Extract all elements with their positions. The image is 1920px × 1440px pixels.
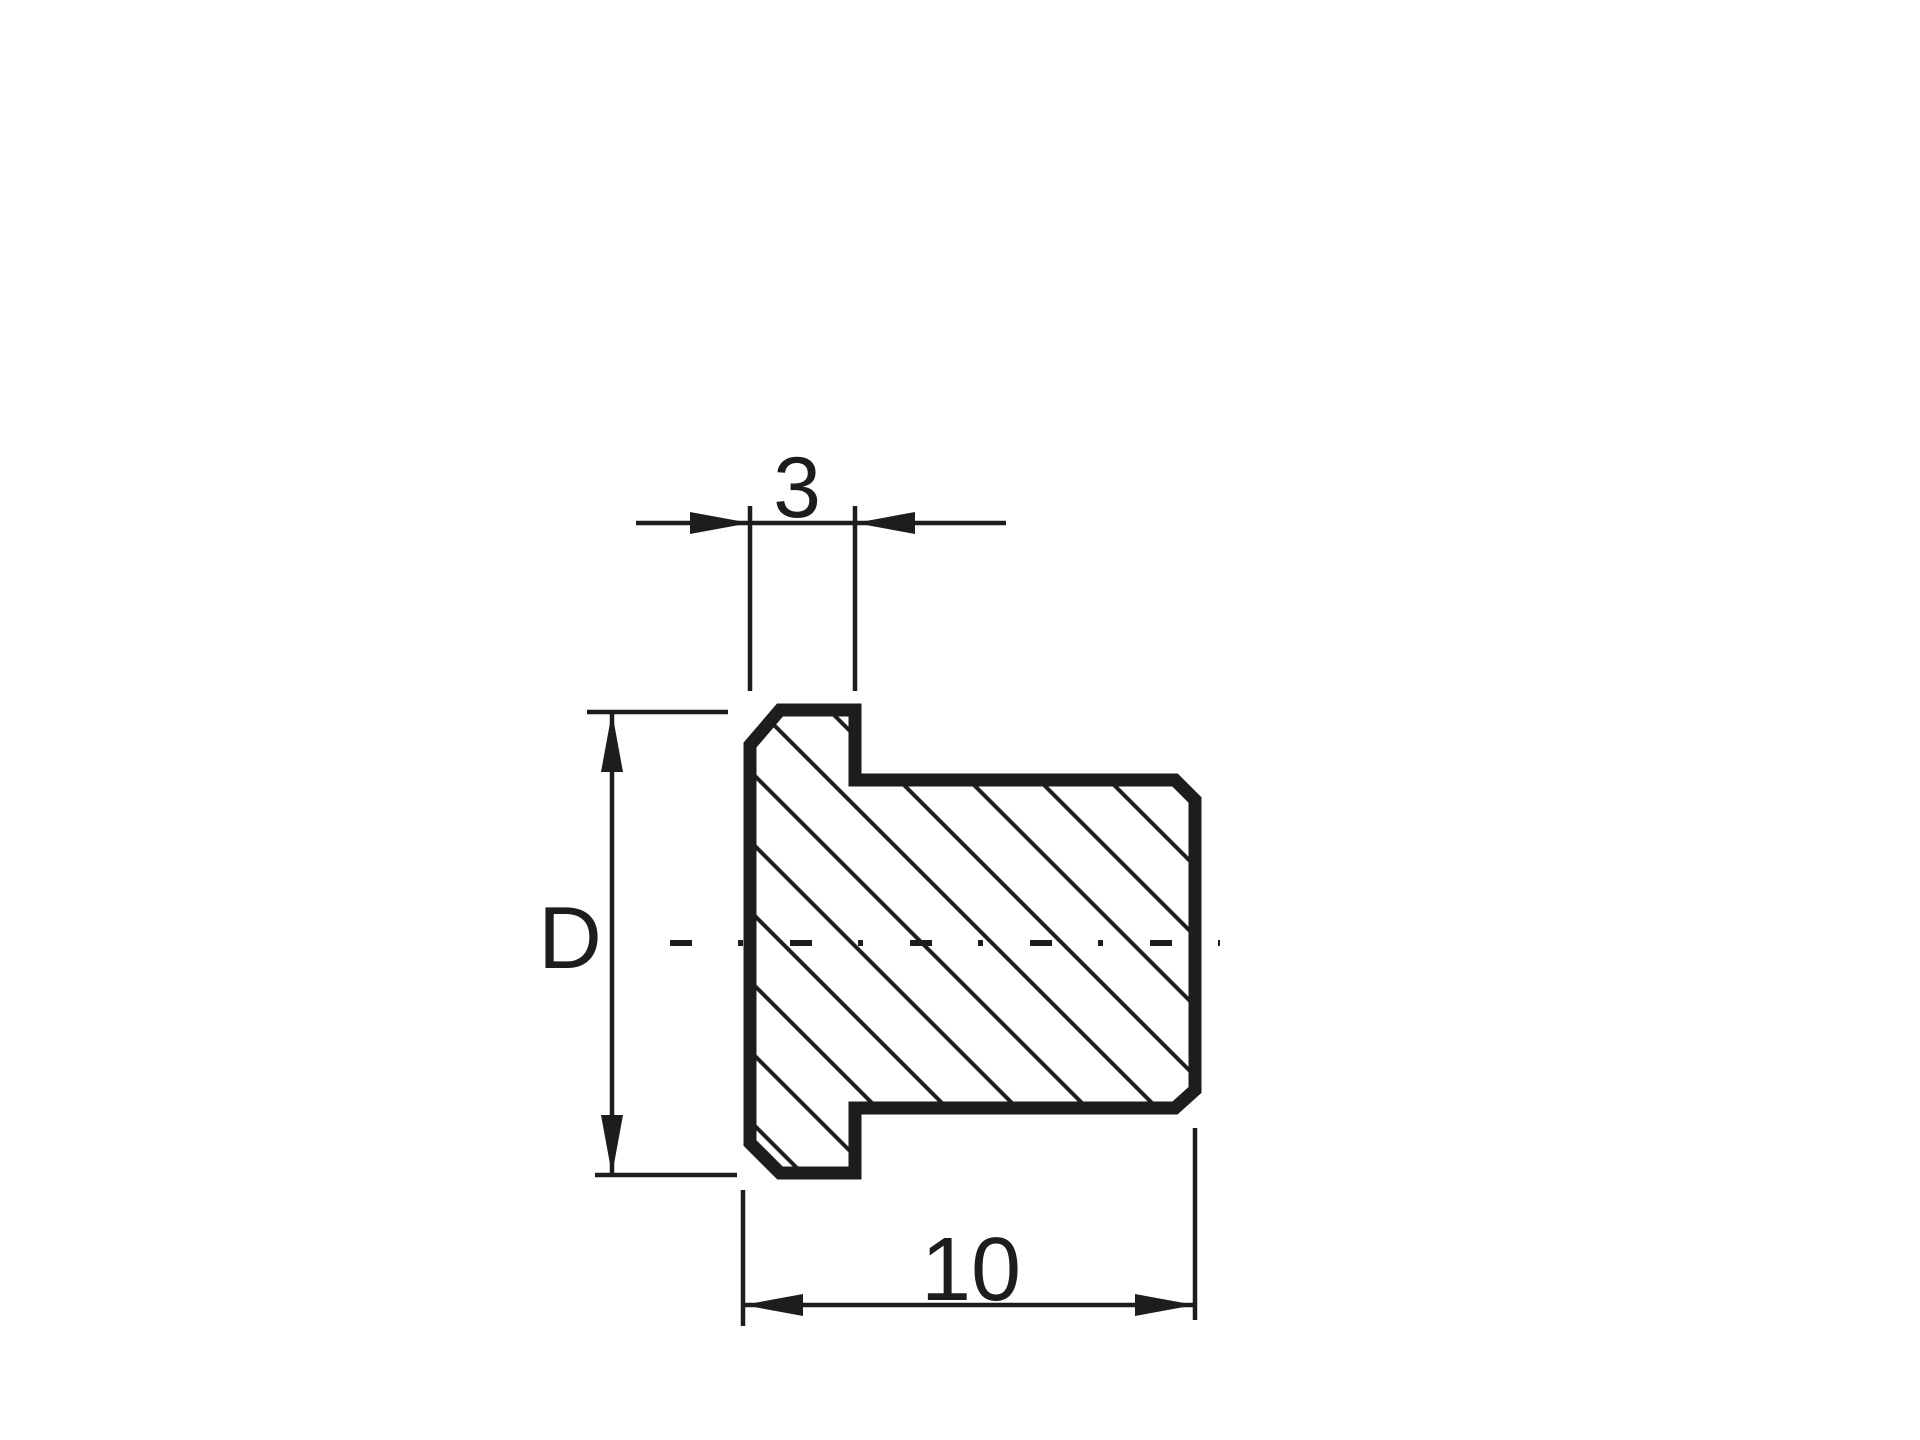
dimension-arrow-right (855, 512, 915, 534)
technical-drawing: 3 D 10 (0, 0, 1920, 1440)
dimension-arrow-right (1135, 1294, 1195, 1316)
dimension-diameter: D (538, 712, 737, 1175)
dimension-arrow-left (690, 512, 750, 534)
part-cross-section (750, 710, 1195, 1173)
dimension-label-diameter: D (538, 888, 602, 987)
drawing-root: 3 D 10 (538, 440, 1220, 1326)
dimension-arrow-down (601, 1115, 623, 1175)
dimension-arrow-up (601, 712, 623, 772)
dimension-arrow-left (743, 1294, 803, 1316)
dimension-label-flange-thickness: 3 (773, 440, 821, 536)
dimension-label-overall-length: 10 (921, 1220, 1021, 1320)
dimension-flange-thickness: 3 (636, 440, 1006, 691)
